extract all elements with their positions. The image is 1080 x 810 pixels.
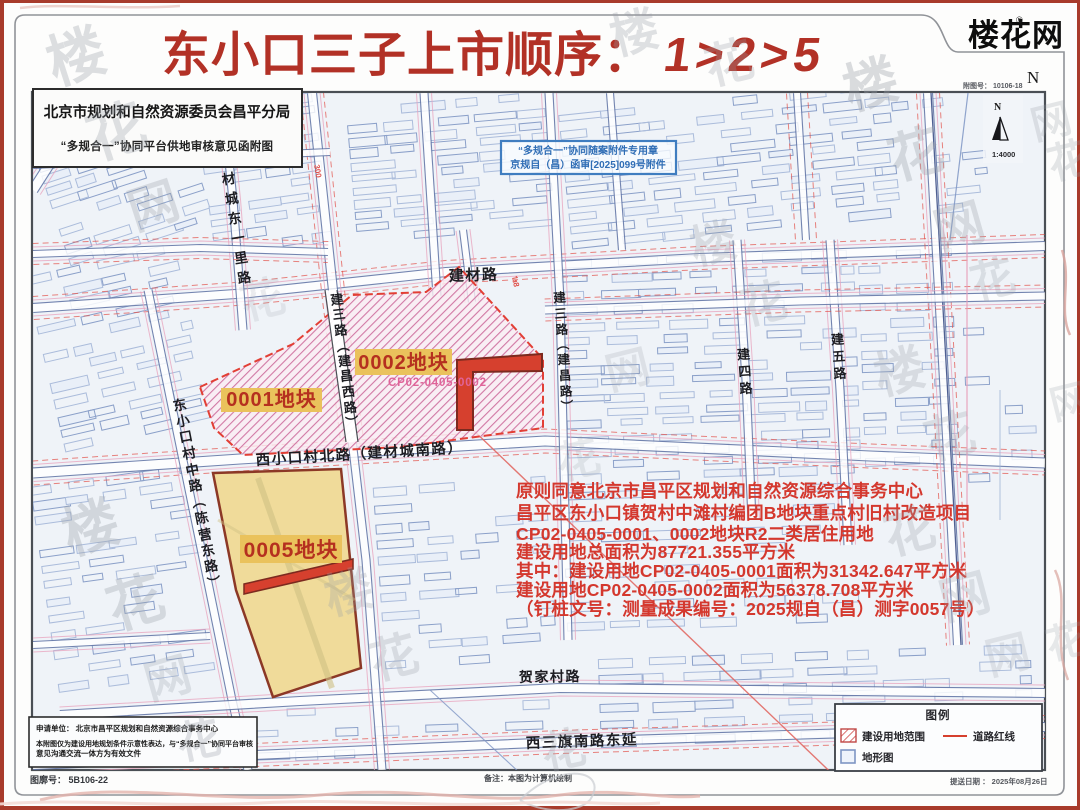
svg-text:建: 建 (831, 332, 845, 348)
svg-text:口: 口 (178, 428, 194, 445)
svg-text:0001地块: 0001地块 (226, 388, 317, 411)
svg-text:建设用地总面积为87721.355平方米: 建设用地总面积为87721.355平方米 (516, 542, 796, 562)
svg-text:建: 建 (557, 351, 571, 367)
svg-text:其中：建设用地CP02-0405-0001面积为31342.: 其中：建设用地CP02-0405-0001面积为31342.647平方米 (516, 561, 967, 581)
svg-text:建设用地CP02-0405-0002面积为56378.708: 建设用地CP02-0405-0002面积为56378.708平方米 (516, 580, 914, 600)
svg-text:建: 建 (553, 290, 567, 306)
svg-text:图例: 图例 (926, 708, 951, 722)
svg-text:道路红线: 道路红线 (973, 730, 1015, 743)
svg-text:图廓号： 5B106-22: 图廓号： 5B106-22 (30, 774, 108, 785)
svg-text:︵: ︵ (555, 337, 570, 352)
svg-text:CP02-0405-0002: CP02-0405-0002 (388, 377, 487, 389)
svg-text:“多规合一”协同随案附件专用章: “多规合一”协同随案附件专用章 (518, 144, 658, 157)
svg-text:西: 西 (341, 384, 356, 400)
svg-text:︵: ︵ (334, 338, 350, 355)
svg-text:︶: ︶ (344, 414, 360, 431)
svg-text:0002地块: 0002地块 (358, 351, 449, 374)
svg-text:提送日期 ： 2025年08月26日: 提送日期 ： 2025年08月26日 (950, 776, 1048, 786)
svg-text:昌: 昌 (339, 368, 354, 384)
svg-text:路: 路 (559, 383, 573, 399)
svg-text:CP02-0405-0001、0002地块R2二类居住用地: CP02-0405-0001、0002地块R2二类居住用地 (516, 524, 874, 544)
svg-text:五: 五 (832, 349, 846, 365)
svg-text:贺家村路: 贺家村路 (518, 668, 581, 685)
svg-text:地形图: 地形图 (862, 751, 894, 764)
svg-text:1:4000: 1:4000 (992, 150, 1015, 159)
svg-text:意见沟通交流一体方为有效文件: 意见沟通交流一体方为有效文件 (36, 748, 141, 758)
svg-text:东小口三子上市顺序：: 东小口三子上市顺序： (162, 29, 652, 82)
svg-text:三: 三 (554, 307, 567, 322)
svg-text:建材路: 建材路 (449, 265, 499, 285)
svg-text:建: 建 (330, 291, 345, 307)
svg-text:四: 四 (738, 364, 752, 380)
svg-text:三: 三 (331, 306, 346, 322)
svg-text:昌: 昌 (558, 367, 572, 383)
svg-text:路: 路 (739, 380, 754, 396)
svg-text:N: N (1027, 68, 1039, 87)
svg-text:建: 建 (337, 353, 352, 369)
svg-text:建设用地范围: 建设用地范围 (861, 730, 925, 743)
svg-text:京规自（昌）函审[2025]099号附件: 京规自（昌）函审[2025]099号附件 (510, 158, 666, 171)
svg-text:路: 路 (555, 321, 569, 337)
svg-text:（钉桩文号：测量成果编号：2025规自（昌）测字0057号）: （钉桩文号：测量成果编号：2025规自（昌）测字0057号） (516, 599, 985, 619)
svg-text:建: 建 (737, 347, 751, 363)
svg-text:0005地块: 0005地块 (244, 538, 339, 562)
svg-text:®: ® (1016, 15, 1023, 25)
svg-text:N: N (994, 102, 1002, 113)
svg-text:附图号： 10106-18: 附图号： 10106-18 (963, 81, 1023, 90)
svg-text:路: 路 (833, 365, 848, 381)
svg-text:︶: ︶ (559, 398, 574, 414)
